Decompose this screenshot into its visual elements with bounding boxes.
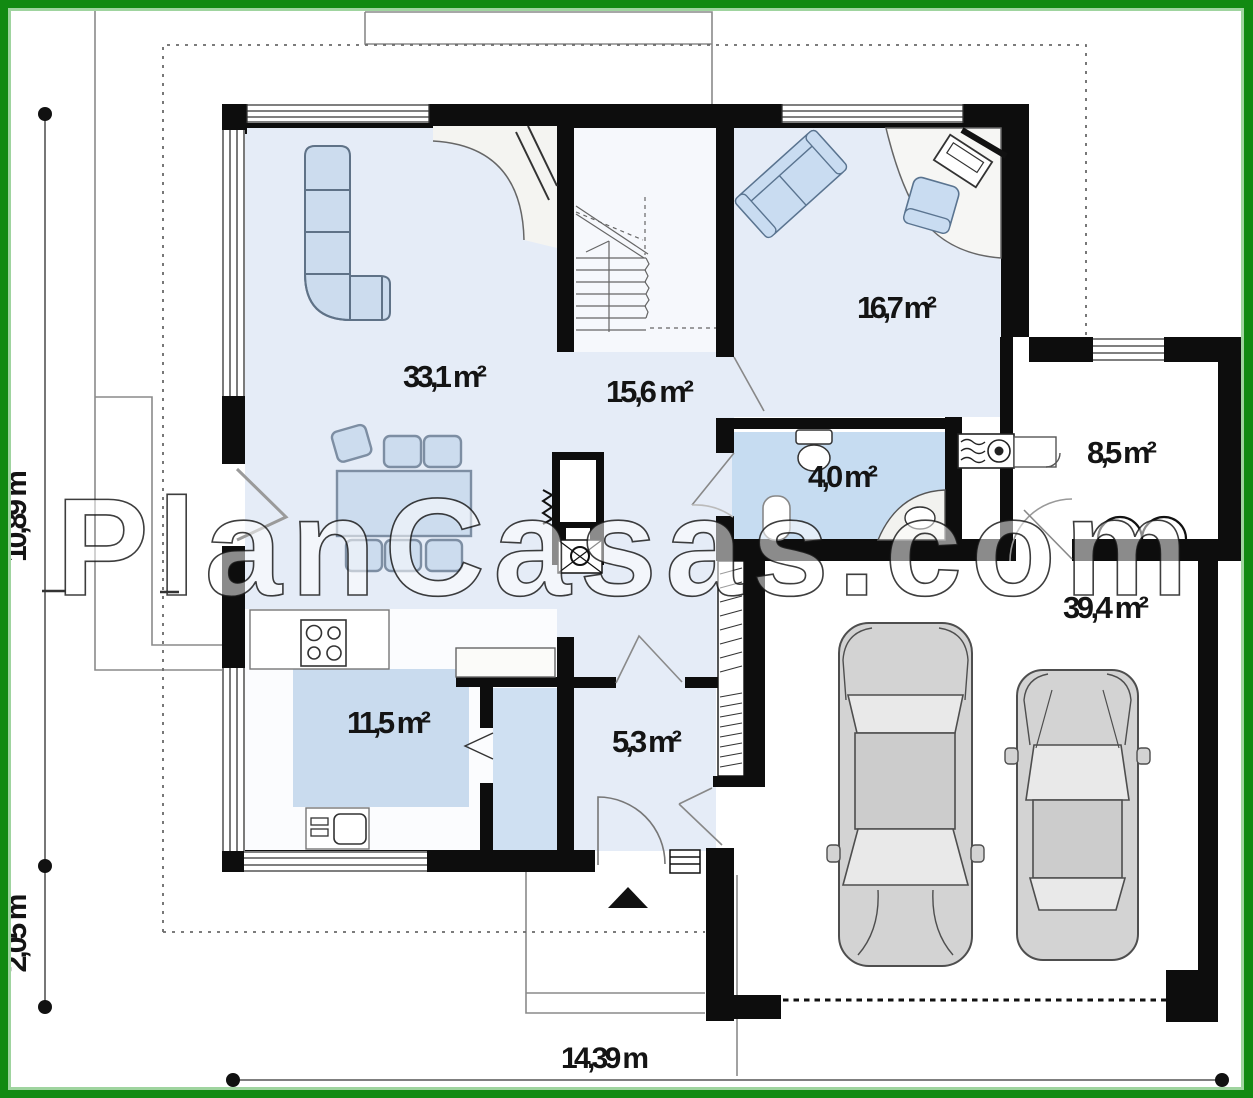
svg-text:5,3 m²: 5,3 m² [612, 724, 682, 759]
svg-text:14,39 m: 14,39 m [561, 1042, 649, 1075]
svg-text:16,7 m²: 16,7 m² [857, 290, 937, 325]
svg-text:PlanCasas.com: PlanCasas.com [56, 470, 1188, 625]
svg-text:15,6 m²: 15,6 m² [606, 374, 694, 409]
svg-text:11,5 m²: 11,5 m² [347, 705, 431, 740]
svg-text:33,1 m²: 33,1 m² [403, 359, 487, 394]
svg-text:8,5 m²: 8,5 m² [1087, 435, 1157, 470]
